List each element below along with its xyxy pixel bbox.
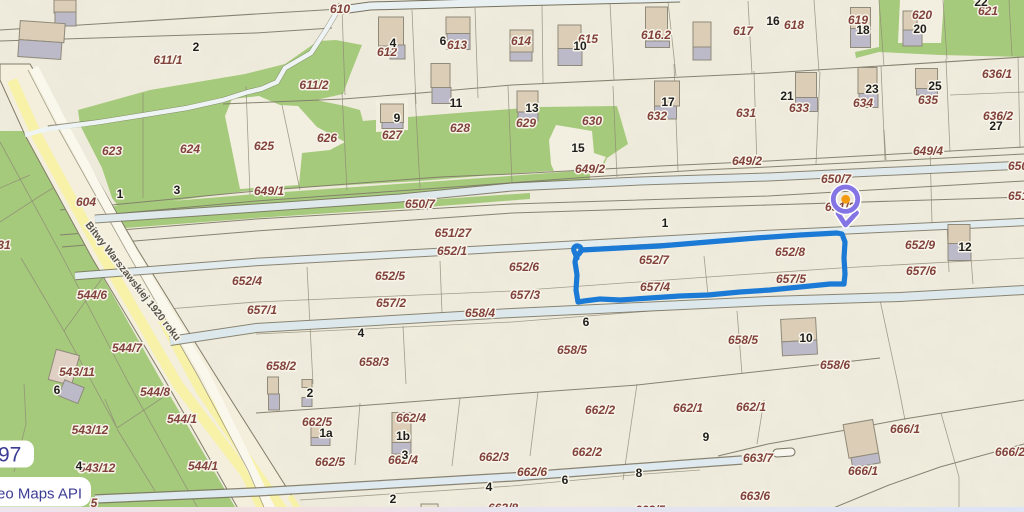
svg-text:616.2: 616.2 [641,28,671,42]
svg-text:611/2: 611/2 [299,78,328,92]
svg-text:3: 3 [174,183,181,197]
svg-text:633: 633 [789,101,809,115]
svg-text:666/1: 666/1 [848,464,878,478]
svg-text:651: 651 [1008,189,1024,203]
svg-text:628: 628 [450,121,470,135]
svg-text:8: 8 [636,466,643,480]
svg-text:9: 9 [394,111,401,125]
svg-text:623: 623 [102,144,122,158]
svg-text:2: 2 [307,386,314,400]
svg-text:634: 634 [853,96,873,110]
svg-text:652/6: 652/6 [509,260,539,274]
svg-text:649/1: 649/1 [254,184,284,198]
svg-text:13: 13 [525,101,539,115]
svg-text:4: 4 [486,480,493,494]
svg-text:6: 6 [54,383,61,397]
svg-text:544/6: 544/6 [77,288,107,302]
svg-text:22: 22 [974,0,988,9]
svg-text:543/12: 543/12 [79,461,116,475]
svg-text:658/5: 658/5 [557,343,587,357]
svg-text:652/9: 652/9 [905,238,935,252]
svg-text:1a: 1a [319,426,333,440]
svg-text:21: 21 [780,89,794,103]
svg-text:4: 4 [76,459,83,473]
svg-text:1: 1 [662,216,669,230]
svg-text:20: 20 [913,22,927,36]
svg-text:658/6: 658/6 [820,358,850,372]
svg-text:617: 617 [733,24,754,38]
svg-text:652/7: 652/7 [639,253,670,267]
svg-text:4: 4 [358,326,365,340]
svg-text:2: 2 [390,492,397,506]
svg-text:23: 23 [865,82,879,96]
svg-text:97: 97 [0,444,21,467]
svg-text:6: 6 [583,315,590,329]
svg-text:662/1: 662/1 [736,400,766,414]
svg-text:25: 25 [928,79,942,93]
svg-text:544/8: 544/8 [140,385,170,399]
svg-text:651/27: 651/27 [435,226,473,240]
svg-text:649/2: 649/2 [732,154,762,168]
svg-text:9: 9 [703,430,710,444]
svg-text:658/2: 658/2 [266,359,296,373]
svg-text:652/5: 652/5 [375,269,405,283]
svg-text:eo Maps API: eo Maps API [0,486,82,503]
svg-text:631: 631 [736,106,756,120]
svg-text:543/11: 543/11 [59,365,95,379]
svg-text:17: 17 [661,95,675,109]
svg-text:544/1: 544/1 [167,412,197,426]
svg-text:27: 27 [989,119,1003,133]
svg-text:618: 618 [784,18,804,32]
svg-text:3: 3 [402,448,409,462]
svg-text:611/1: 611/1 [153,53,182,67]
svg-text:6: 6 [562,473,569,487]
svg-text:626: 626 [317,131,337,145]
svg-text:652/4: 652/4 [232,274,262,288]
svg-text:662/2: 662/2 [585,403,615,417]
svg-text:662/5: 662/5 [315,455,345,469]
svg-text:657/2: 657/2 [376,296,406,310]
svg-text:4: 4 [390,36,397,50]
svg-text:543/12: 543/12 [72,423,109,437]
svg-text:627: 627 [382,128,403,142]
svg-text:16: 16 [766,14,780,28]
svg-text:15: 15 [571,141,585,155]
svg-text:632: 632 [647,109,667,123]
svg-text:629: 629 [516,116,536,130]
svg-text:635: 635 [918,93,938,107]
svg-text:649/4: 649/4 [913,144,943,158]
svg-text:657/6: 657/6 [906,264,936,278]
svg-text:620: 620 [912,8,932,22]
svg-text:662/4: 662/4 [396,411,426,425]
svg-text:10: 10 [799,331,813,345]
svg-text:658/4: 658/4 [465,306,495,320]
svg-text:544/7: 544/7 [112,341,143,355]
svg-text:666/1: 666/1 [890,422,920,436]
svg-text:1: 1 [117,187,124,201]
svg-text:652/8: 652/8 [775,245,805,259]
svg-text:650: 650 [1008,159,1024,173]
svg-text:662/6: 662/6 [517,465,547,479]
svg-text:18: 18 [856,23,870,37]
svg-text:2: 2 [193,40,200,54]
svg-text:625: 625 [254,139,274,153]
svg-text:652/1: 652/1 [437,244,467,258]
svg-text:544/1: 544/1 [188,459,218,473]
svg-text:666/2: 666/2 [995,445,1024,459]
svg-text:662/2: 662/2 [572,445,602,459]
svg-text:663/7: 663/7 [743,451,774,465]
svg-text:649/2: 649/2 [575,162,605,176]
svg-text:663/6: 663/6 [740,489,770,503]
svg-text:650/7: 650/7 [405,197,436,211]
svg-text:657/5: 657/5 [776,272,806,286]
svg-text:657/3: 657/3 [510,288,540,302]
svg-text:658/5: 658/5 [728,333,758,347]
svg-text:658/3: 658/3 [359,355,389,369]
svg-text:624: 624 [180,142,200,156]
svg-text:6: 6 [440,34,447,48]
svg-text:636/1: 636/1 [982,67,1012,81]
svg-text:12: 12 [958,240,972,254]
svg-text:610: 610 [330,2,350,16]
svg-text:604: 604 [76,195,96,209]
svg-text:11: 11 [450,96,463,110]
svg-text:31: 31 [0,238,11,252]
svg-text:630: 630 [582,114,602,128]
svg-text:657/4: 657/4 [640,280,670,294]
svg-text:662/3: 662/3 [479,450,509,464]
svg-text:662/1: 662/1 [673,401,703,415]
svg-text:613: 613 [447,38,467,52]
svg-text:657/1: 657/1 [247,303,277,317]
svg-text:614: 614 [511,34,531,48]
svg-text:1b: 1b [396,429,410,443]
svg-text:10: 10 [573,39,587,53]
